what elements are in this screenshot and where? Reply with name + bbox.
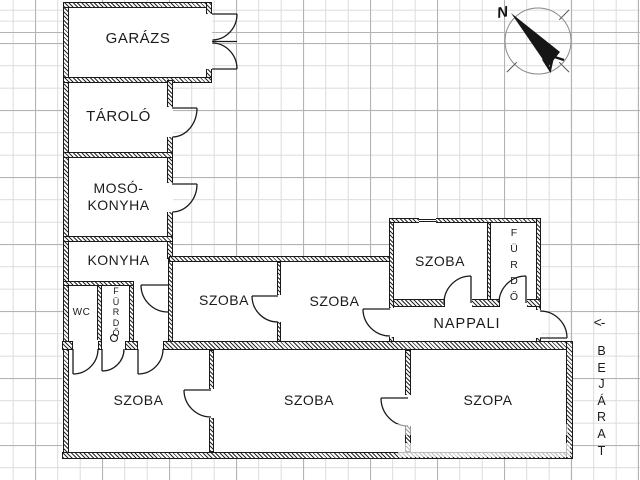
watermark-smudge (386, 424, 568, 435)
moso-konyha-door (172, 184, 197, 212)
tarolo-door (172, 108, 197, 137)
room-label-szoba-bottom-center: SZOBA (214, 352, 404, 450)
room-label-furdo-right: FÜRDŐ (506, 225, 522, 305)
garage-door (212, 14, 237, 69)
room-label-furdo-small: FÜRDŐ (108, 286, 124, 339)
konyha-door (141, 285, 168, 312)
room-label-szoba-bottom-left: SZOBA (69, 352, 208, 450)
watermark-smudge (398, 443, 570, 457)
entrance-arrow: <- (584, 314, 614, 332)
room-label-moso-konyha-line2: KONYHA (87, 197, 149, 215)
compass: N (496, 3, 571, 74)
room-label-szoba-bottom-right: SZOPA (411, 352, 565, 450)
room-label-garazs: GARÁZS (69, 8, 207, 70)
room-label-szoba-top-right: SZOBA (394, 224, 486, 300)
room-label-wc: WC (66, 288, 97, 338)
room-label-moso-konyha: MOSÓ- KONYHA (69, 160, 168, 234)
entrance-label: BEJÁRAT (593, 343, 610, 459)
room-label-konyha: KONYHA (69, 240, 168, 281)
entrance-door (540, 311, 567, 338)
room-label-szoba-mid-left: SZOBA (172, 261, 276, 341)
room-label-tarolo: TÁROLÓ (69, 85, 168, 150)
floor-plan: N GARÁZS TÁROLÓ MOSÓ- KONYHA KONYHA WC F… (0, 0, 640, 480)
room-label-szoba-mid-center: SZOBA (282, 261, 387, 343)
room-label-moso-konyha-line1: MOSÓ- (94, 180, 144, 198)
room-label-nappali: NAPPALI (394, 305, 540, 343)
compass-north-label: N (496, 3, 511, 22)
